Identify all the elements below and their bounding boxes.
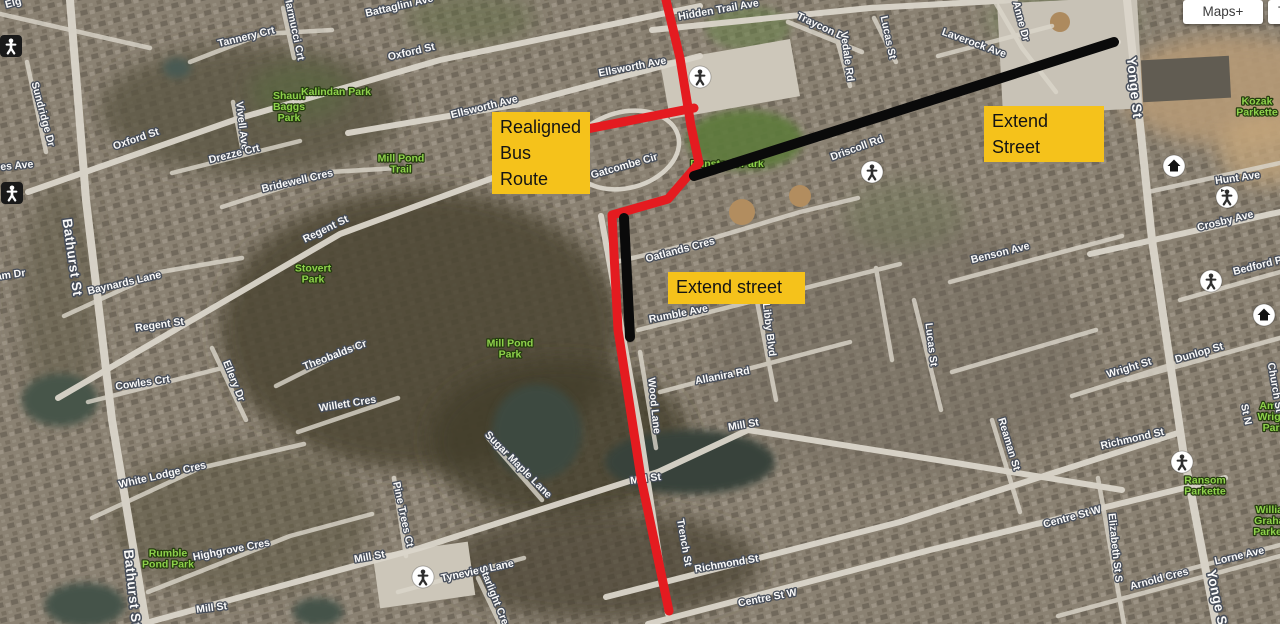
label-kozak-parkette: KozakParkette [1236,96,1278,119]
label-rumble-pond-park: RumblePond Park [142,548,194,571]
label-kalindan-park: Kalindan Park [301,86,371,98]
extend-street-label-north: Extend Street [984,106,1104,162]
pedestrian-circle-icon[interactable] [861,161,883,183]
pedestrian-circle-icon[interactable] [1171,451,1193,473]
pedestrian-flag-circle-icon[interactable] [1216,186,1238,208]
tools-button[interactable]: To [1268,0,1280,24]
terrain-layer [0,0,1280,624]
label-william-graham-parkette: WilliamGrahamParkette [1253,504,1280,538]
extend-street-line-south [624,218,630,337]
pedestrian-circle-icon[interactable] [689,66,711,88]
pedestrian-square-icon[interactable] [1,182,23,204]
satellite-map-canvas[interactable]: ElgBattaglini AveTannery CrtMarmucci Crt… [0,0,1280,624]
pedestrian-square-icon[interactable] [0,35,22,57]
home-circle-icon[interactable] [1253,304,1275,326]
pedestrian-circle-icon[interactable] [1200,270,1222,292]
aerial-map-view[interactable]: ElgBattaglini AveTannery CrtMarmucci Crt… [0,0,1280,624]
home-circle-icon[interactable] [1163,155,1185,177]
maps-plus-button[interactable]: Maps+ [1183,0,1263,24]
extend-street-label-south: Extend street [668,272,805,304]
realigned-bus-route-label: Realigned Bus Route [492,112,590,194]
label-ransom-parkette: RansomParkette [1184,475,1226,498]
pedestrian-circle-icon[interactable] [412,566,434,588]
